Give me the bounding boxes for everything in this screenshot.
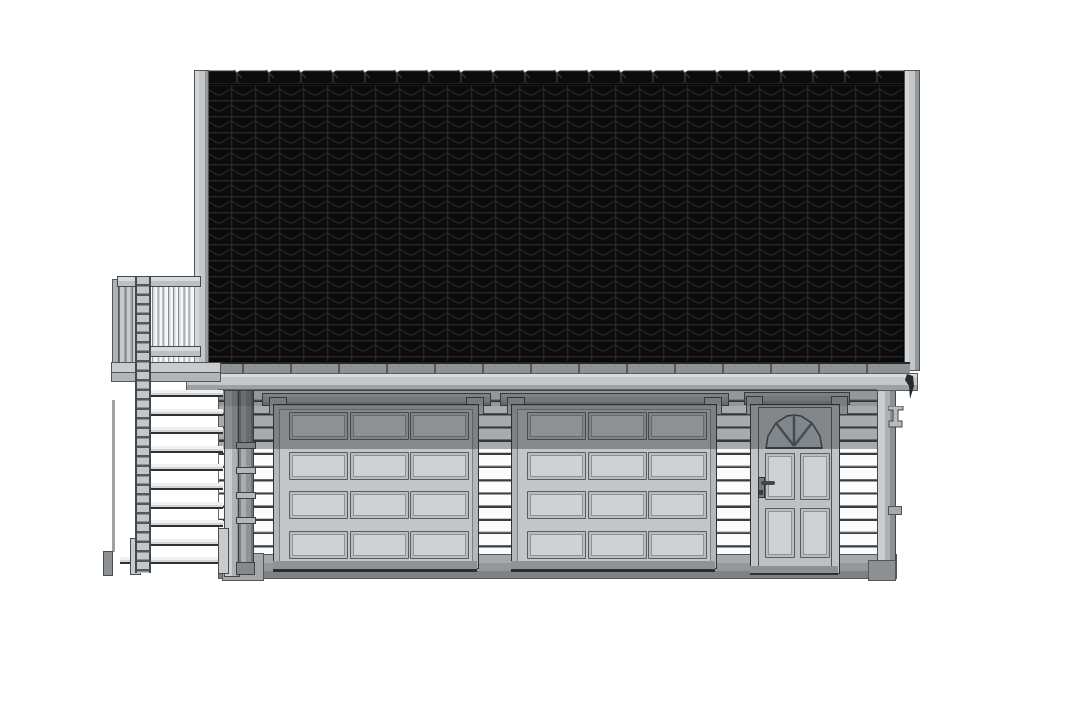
stair-tread <box>145 539 223 546</box>
garage-door-panel <box>527 452 586 480</box>
entry-door-panel <box>765 508 795 558</box>
downspout-collar <box>236 492 256 499</box>
elevation-drawing <box>0 0 1081 720</box>
barge-board-right <box>904 70 920 371</box>
garage-door-panel <box>350 491 409 519</box>
garage-door-panel <box>588 531 647 559</box>
garage-door-bottom-rail <box>273 561 477 572</box>
garage-door-panel <box>289 452 348 480</box>
garage-door-panel <box>350 412 409 440</box>
garage-door-panel <box>350 531 409 559</box>
stair-stringer-line <box>112 400 115 552</box>
garage-door-panel <box>588 412 647 440</box>
stair-tread <box>145 409 223 416</box>
garage-door-panel <box>527 412 586 440</box>
entry-door-threshold <box>750 566 838 575</box>
downspout-collar <box>236 467 256 474</box>
garage-door-panel <box>289 531 348 559</box>
gutter-corbel-bracket <box>888 406 904 428</box>
corbel-icon <box>888 406 904 428</box>
stair-tread <box>145 446 223 453</box>
garage-door-panel <box>289 491 348 519</box>
entry-door-panel <box>765 453 795 500</box>
garage-door-panel <box>410 412 469 440</box>
garage-door-panel <box>648 452 707 480</box>
roof-tile-field <box>207 84 905 363</box>
garage-door-panel <box>648 491 707 519</box>
wall-tie-bracket <box>888 506 902 515</box>
garage-door-panel <box>289 412 348 440</box>
garage-door-panel <box>527 531 586 559</box>
stair-foot-post-right <box>218 528 229 574</box>
balcony-balusters <box>147 285 196 346</box>
balcony-bottom-rail <box>144 346 201 357</box>
entry-door-panel <box>800 508 830 558</box>
downspout-shoe <box>236 562 255 575</box>
garage-door-panel <box>410 491 469 519</box>
drip-icon <box>905 374 915 400</box>
garage-door-panel <box>527 491 586 519</box>
entry-door-handle <box>761 481 775 485</box>
stair-tread <box>145 520 223 527</box>
gutter-end-drip <box>905 374 915 400</box>
foundation-block-right <box>868 560 896 581</box>
barge-board-left <box>194 70 209 368</box>
stair-tread <box>145 483 223 490</box>
fascia-board <box>186 373 918 391</box>
stair-tread <box>145 427 223 434</box>
garage-door-bottom-rail <box>511 561 715 572</box>
entry-door-fanlight <box>763 410 825 449</box>
entry-door-panel <box>800 453 830 500</box>
entry-door-lock-cylinder <box>759 490 763 495</box>
stair-tread <box>145 502 223 509</box>
garage-door-panel <box>350 452 409 480</box>
stair-tread <box>145 390 223 397</box>
stair-foot-post-left <box>103 551 113 576</box>
fanlight-icon <box>763 410 825 449</box>
garage-door-panel <box>588 452 647 480</box>
stair-tread <box>145 464 223 471</box>
garage-door-panel <box>648 531 707 559</box>
balcony-top-rail <box>117 276 201 287</box>
garage-door-panel <box>410 531 469 559</box>
downspout-collar <box>236 517 256 524</box>
garage-door-panel <box>588 491 647 519</box>
balcony-floor-edge <box>111 372 221 382</box>
stair-ladder-rail <box>135 277 151 573</box>
garage-door-panel <box>648 412 707 440</box>
garage-door-panel <box>410 452 469 480</box>
downspout-collar <box>236 442 256 449</box>
roof-tiles-icon <box>207 84 905 363</box>
